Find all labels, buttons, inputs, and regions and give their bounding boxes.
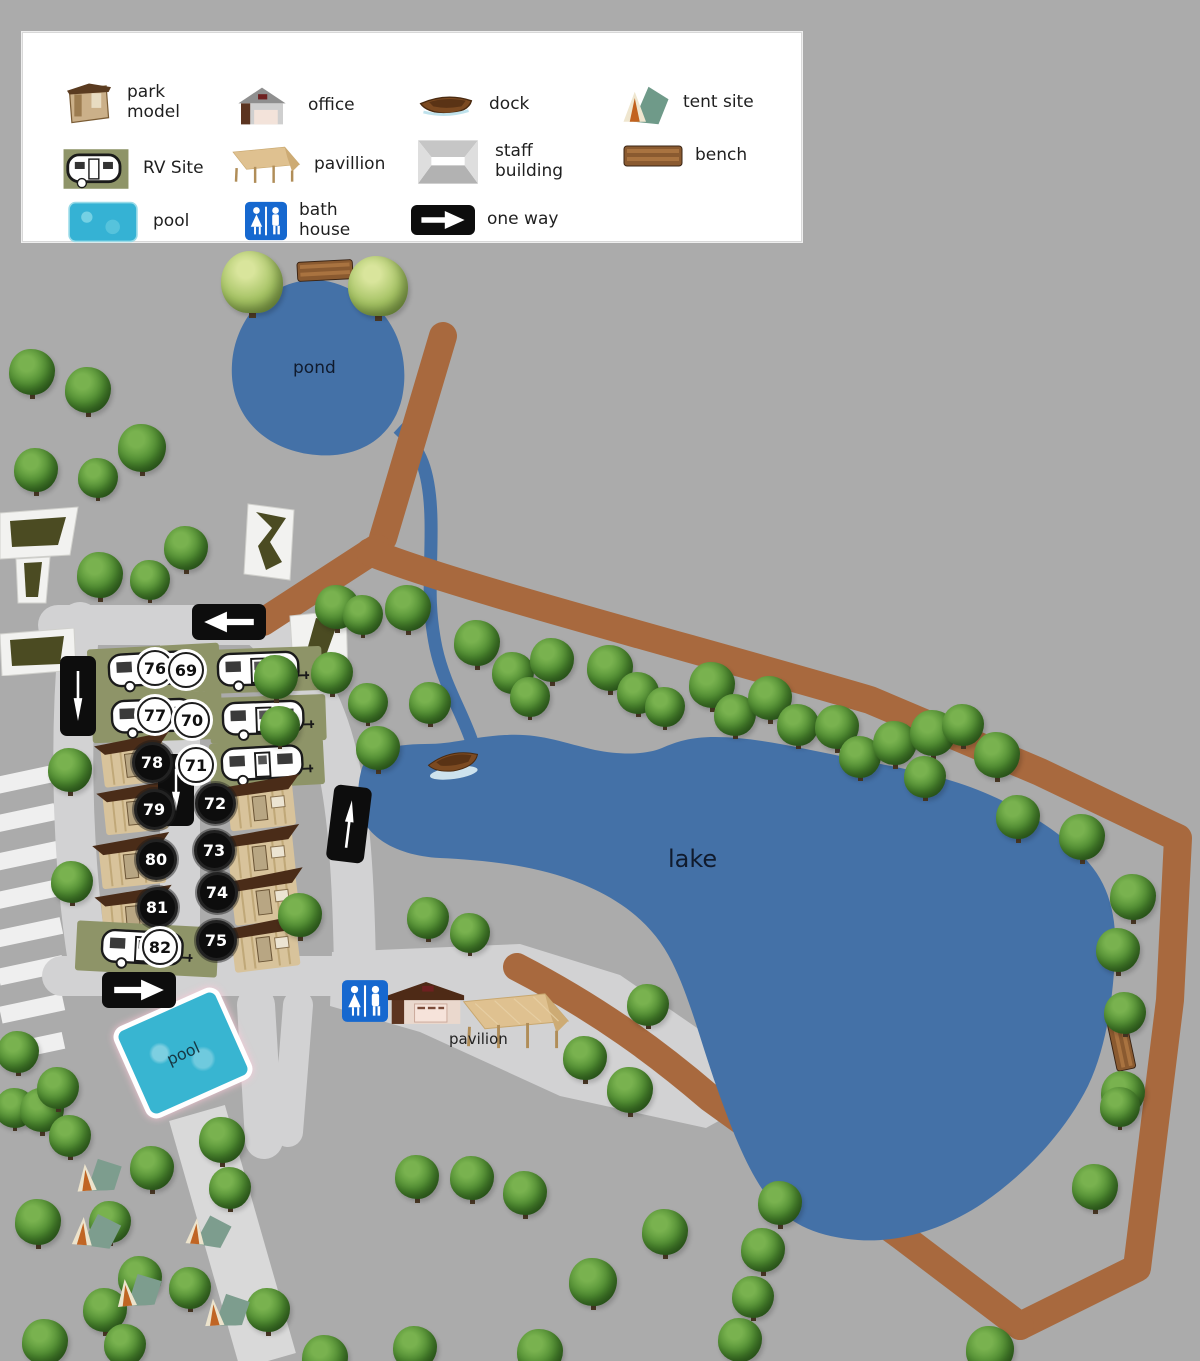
- legend-label: dock: [489, 95, 529, 115]
- lake-label: lake: [668, 845, 717, 873]
- legend-label: tent site: [683, 93, 754, 113]
- legend-label: office: [308, 96, 355, 116]
- bath-house-icon: [245, 199, 287, 243]
- tent: [112, 1265, 168, 1309]
- rv-site-icon: [61, 145, 131, 193]
- legend-item-pool: pool: [65, 201, 189, 243]
- site-number-badge: 73: [194, 830, 235, 871]
- bench: [295, 258, 354, 282]
- site-number-badge: 80: [136, 839, 177, 880]
- legend-item-bench: bench: [623, 143, 747, 169]
- site-number-badge: 82: [142, 929, 178, 965]
- legend-item-rv-site: RV Site: [61, 145, 204, 193]
- bath-house: [342, 980, 388, 1022]
- legend-label: staff building: [495, 142, 567, 181]
- park-model-icon: [63, 81, 115, 125]
- rv-site-unit: [203, 646, 322, 694]
- legend-label: pavillion: [314, 155, 385, 175]
- legend-item-one-way: one way: [411, 205, 558, 235]
- site-number-badge: 74: [197, 872, 238, 913]
- site-number-badge: 77: [137, 697, 173, 733]
- staff-building: [0, 505, 80, 605]
- pool-icon: [65, 201, 141, 243]
- legend-label: RV Site: [143, 159, 204, 179]
- tent-site-icon: [621, 81, 671, 125]
- one-way-icon: [411, 205, 475, 235]
- campground-map: pool pond lake pavilion park model offic…: [0, 0, 1200, 1361]
- site-number-badge: 78: [132, 742, 173, 783]
- legend-item-bath-house: bath house: [245, 199, 363, 243]
- one-way-arrow-down: [60, 656, 96, 736]
- legend-item-staff-building: staff building: [413, 137, 567, 187]
- pool-label: pool: [164, 1037, 203, 1068]
- legend-label: park model: [127, 83, 191, 122]
- tent: [201, 1286, 256, 1328]
- legend-item-office: office: [228, 85, 355, 127]
- staff-building-icon: [413, 137, 483, 187]
- site-number-badge: 75: [196, 920, 237, 961]
- pond-label: pond: [293, 358, 336, 378]
- site-number-badge: 71: [178, 747, 214, 783]
- legend-item-tent-site: tent site: [621, 81, 754, 125]
- legend-item-pavillion: pavillion: [228, 141, 385, 189]
- tent: [183, 1207, 236, 1248]
- office-building: [386, 980, 466, 1026]
- bench-icon: [623, 143, 683, 169]
- one-way-arrow-left: [192, 604, 266, 640]
- legend: park model office dock: [22, 32, 802, 242]
- site-number-badge: 79: [134, 789, 175, 830]
- office-icon: [228, 85, 296, 127]
- site-number-badge: 72: [195, 783, 236, 824]
- one-way-arrow-right: [102, 972, 176, 1008]
- tent: [70, 1206, 127, 1250]
- one-way-arrow-up: [326, 784, 373, 864]
- site-number-badge: 81: [137, 887, 178, 928]
- legend-label: pool: [153, 212, 189, 232]
- rv-site-unit: [209, 694, 327, 744]
- legend-label: one way: [487, 210, 558, 230]
- dock-icon: [415, 89, 477, 121]
- pavilion-label: pavilion: [449, 1030, 508, 1048]
- legend-item-dock: dock: [415, 89, 529, 121]
- legend-label: bench: [695, 146, 747, 166]
- tent: [72, 1151, 127, 1194]
- legend-item-park-model: park model: [63, 81, 191, 125]
- staff-building: [242, 502, 300, 582]
- site-number-badge: 70: [174, 702, 210, 738]
- site-number-badge: 69: [168, 652, 204, 688]
- pavillion-icon: [228, 141, 302, 189]
- legend-label: bath house: [299, 201, 363, 240]
